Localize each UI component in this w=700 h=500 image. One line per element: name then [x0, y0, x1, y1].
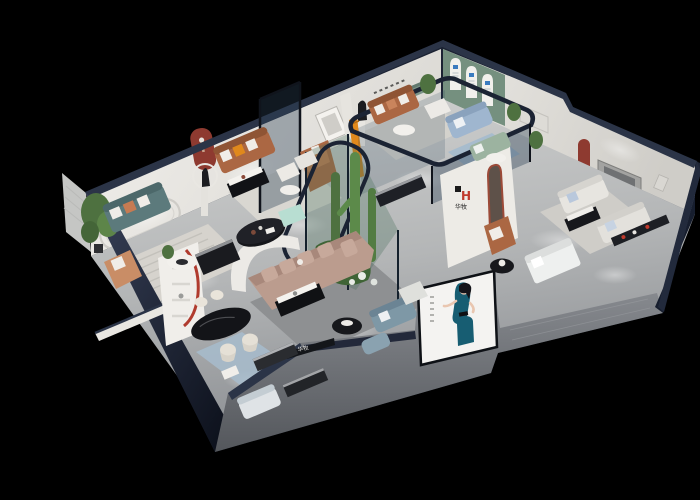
- table-tray: [176, 259, 188, 265]
- plant: [529, 131, 543, 149]
- chair-pillow: [499, 260, 506, 267]
- arch-window: [466, 66, 477, 98]
- table-tray: [341, 320, 353, 326]
- arch-logo-mark: [469, 73, 474, 77]
- side-table: [280, 185, 300, 195]
- floor-light-pool: [593, 266, 637, 284]
- shelf-decor: [179, 294, 184, 299]
- dining-stool: [195, 297, 208, 307]
- dining-chair: [220, 344, 236, 363]
- arch-logo-mark: [485, 81, 490, 85]
- vase-decor: [297, 259, 303, 265]
- plant: [507, 103, 521, 121]
- plant: [420, 74, 436, 94]
- round-table: [393, 125, 415, 136]
- logo-letter: H: [461, 189, 471, 203]
- showroom-svg: 华牧: [0, 0, 700, 500]
- dining-chair: [242, 334, 258, 353]
- round-table: [486, 153, 506, 163]
- showroom-render: 华牧: [0, 0, 700, 500]
- building: 华牧: [62, 40, 700, 452]
- logo-brand-name: 华牧: [455, 203, 467, 211]
- plant-pot: [94, 244, 103, 253]
- terrarium-flowers: [349, 279, 355, 285]
- fashion-poster: [418, 271, 497, 365]
- pedestal: [201, 186, 208, 216]
- arch-window: [450, 58, 461, 90]
- small-plant: [162, 245, 174, 259]
- dining-stool: [211, 290, 224, 300]
- arch-logo-mark: [453, 65, 458, 69]
